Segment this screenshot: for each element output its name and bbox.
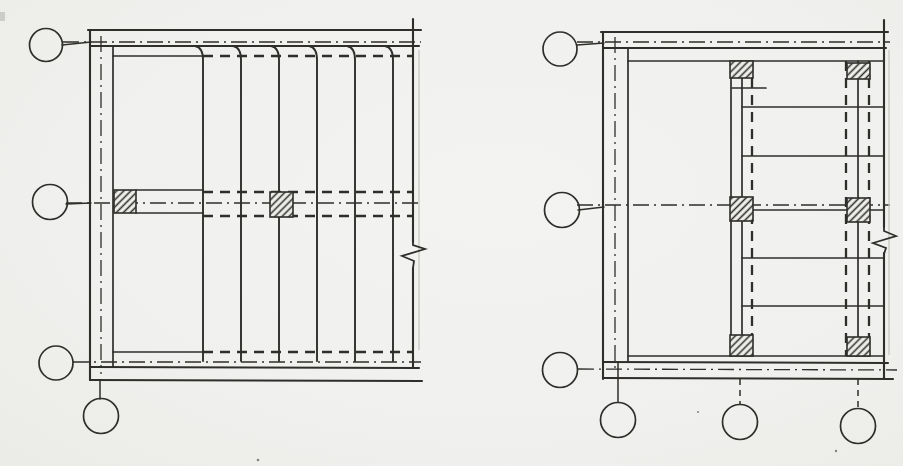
grid-bubble-d bbox=[543, 32, 577, 66]
grid-bubble-c bbox=[39, 346, 73, 380]
break-symbol bbox=[873, 225, 896, 254]
grid-axis-f bbox=[578, 369, 897, 370]
column-hatched-right-center bbox=[847, 198, 870, 222]
framing-plans-svg bbox=[0, 0, 903, 466]
column-hatched-b bbox=[270, 192, 293, 217]
grid-bubble-d bbox=[84, 399, 119, 434]
column-hatched-a bbox=[114, 190, 136, 213]
leader-grid-d bbox=[577, 43, 604, 45]
grid-bubble-i bbox=[841, 409, 876, 444]
column-hatched-right-top bbox=[847, 63, 870, 79]
grid-bubble-h bbox=[723, 405, 758, 440]
paper-speck-2 bbox=[697, 411, 699, 413]
scan-smudge-left-edge bbox=[0, 12, 5, 21]
paper-speck-1 bbox=[257, 459, 260, 462]
break-symbol bbox=[402, 240, 425, 268]
grid-bubble-b bbox=[33, 185, 68, 220]
leader-grid-b bbox=[66, 203, 91, 204]
bottom-band-outer-line bbox=[90, 380, 422, 381]
framing-plan-right bbox=[543, 20, 898, 444]
column-hatched-mid-top bbox=[730, 61, 753, 78]
scanned-drawing-page bbox=[0, 0, 903, 466]
column-hatched-mid-bottom bbox=[730, 335, 753, 356]
bottom-band-inner-line bbox=[603, 362, 888, 363]
grid-bubble-a bbox=[30, 29, 63, 62]
grid-bubble-g bbox=[601, 403, 636, 438]
leader-grid-e bbox=[578, 207, 604, 210]
column-hatched-right-bottom bbox=[847, 337, 870, 356]
framing-plan-left bbox=[30, 19, 426, 434]
paper-speck-3 bbox=[835, 450, 837, 452]
grid-bubble-e bbox=[545, 193, 580, 228]
column-hatched-mid-center bbox=[730, 197, 753, 221]
grid-bubble-f bbox=[543, 353, 578, 388]
bottom-band-inner-line bbox=[90, 367, 419, 368]
bottom-band-outer-line bbox=[603, 378, 893, 379]
